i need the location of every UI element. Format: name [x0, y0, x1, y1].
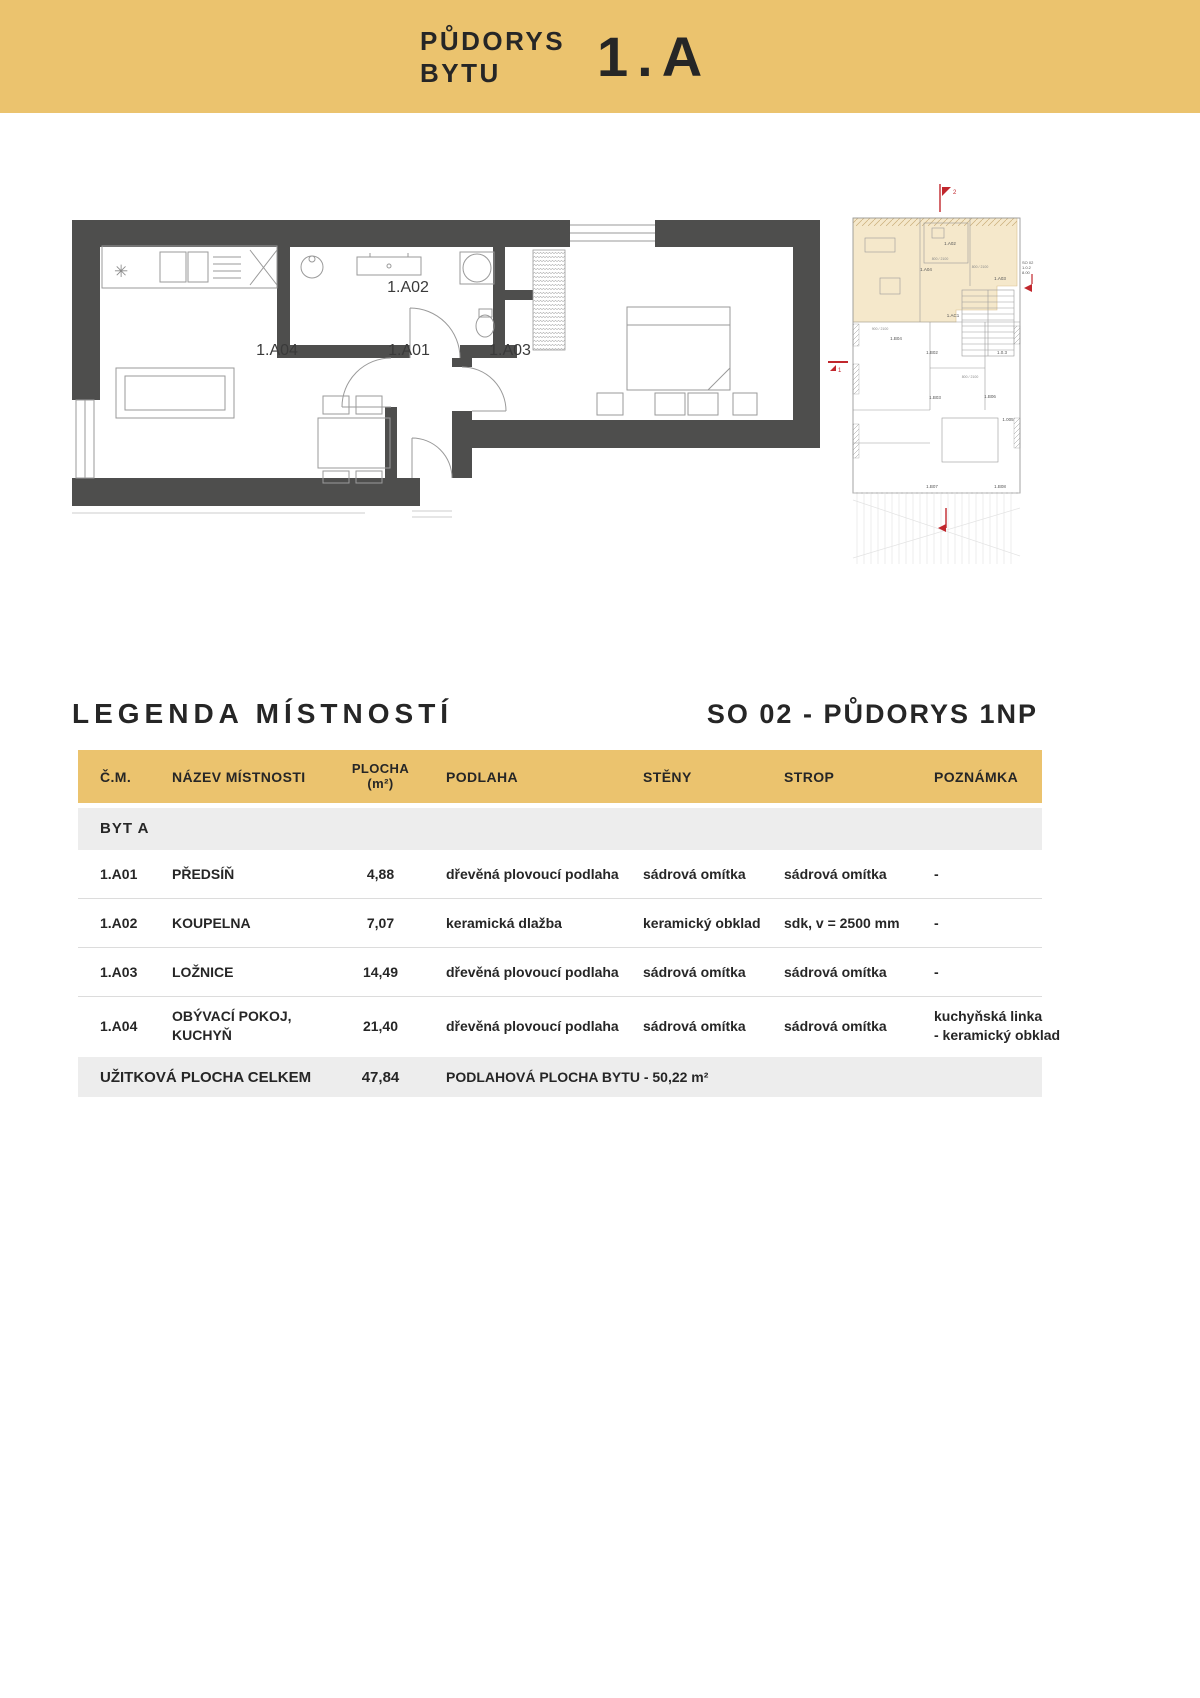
kitchen-counter: ✳ [102, 246, 277, 288]
cell-poznamka: - [921, 866, 1042, 882]
cell-strop: sádrová omítka [771, 964, 921, 980]
cell-podlaha: keramická dlažba [433, 915, 630, 931]
cell-nazev: KOUPELNA [172, 915, 328, 931]
col-header-poznamka: POZNÁMKA [921, 769, 1042, 785]
cell-poznamka: - [921, 915, 1042, 931]
section-marker-top-label: 2 [953, 190, 957, 196]
couch [116, 368, 234, 418]
cell-podlaha: dřevěná plovoucí podlaha [433, 866, 630, 882]
cell-steny: sádrová omítka [630, 964, 771, 980]
dining-table [318, 396, 390, 483]
footer-label: UŽITKOVÁ PLOCHA CELKEM [78, 1069, 328, 1086]
ov-dim: 800 / 2100 [972, 265, 989, 269]
cell-nazev: LOŽNICE [172, 964, 328, 980]
banner-title-line2: BYTU [420, 58, 565, 90]
table-header: Č.M. NÁZEV MÍSTNOSTI PLOCHA (m²) PODLAHA… [78, 750, 1042, 803]
ov-label: 1.A03 [994, 276, 1006, 281]
cell-steny: sádrová omítka [630, 866, 771, 882]
banner-title-line1: PŮDORYS [420, 26, 565, 58]
title-banner: PŮDORYS BYTU 1.A [0, 0, 1200, 113]
table-row: 1.A04 OBÝVACÍ POKOJ, KUCHYŇ 21,40 dřevěn… [78, 996, 1042, 1054]
cell-poznamka: kuchyňská linka - keramický obklad [921, 1007, 1060, 1045]
hob-icon: ✳ [114, 262, 128, 281]
plan-windows [72, 225, 655, 517]
cell-poznamka-line1: kuchyňská linka [934, 1007, 1060, 1026]
section-marker-left: 1 [828, 362, 848, 374]
cell-plocha: 4,88 [328, 866, 433, 882]
section-marker-left-label: 1 [838, 368, 842, 374]
cell-nazev: OBÝVACÍ POKOJ, KUCHYŇ [172, 1007, 328, 1045]
ov-label: 1.B07 [926, 484, 938, 489]
cell-plocha: 7,07 [328, 915, 433, 931]
unit-number: 1.A [597, 24, 711, 89]
section-marker-right [1024, 274, 1032, 292]
ov-dim: 800 / 2100 [932, 257, 949, 261]
cell-nazev-line2: KUCHYŇ [172, 1026, 328, 1045]
cell-strop: sádrová omítka [771, 1018, 921, 1034]
unit-top-hatch [853, 218, 1017, 226]
cell-plocha: 21,40 [328, 1018, 433, 1034]
table-row: 1.A02 KOUPELNA 7,07 keramická dlažba ker… [78, 898, 1042, 947]
cell-steny: sádrová omítka [630, 1018, 771, 1034]
cell-nazev-line1: OBÝVACÍ POKOJ, [172, 1007, 328, 1026]
so-line3: 8.00 [1022, 270, 1031, 275]
unit-highlight [853, 218, 1017, 322]
cell-cm: 1.A02 [78, 915, 172, 931]
so-text-block: SO 02 1.0.2 8.00 [1022, 260, 1034, 275]
ov-label: 1.A02 [944, 241, 956, 246]
room-label-1a03: 1.A03 [489, 342, 531, 359]
section-band: BYT A [78, 808, 1042, 850]
plan-walls [72, 220, 820, 506]
room-labels: 1.A02 1.A04 1.A01 1.A03 [256, 279, 531, 359]
col-header-nazev: NÁZEV MÍSTNOSTI [172, 769, 328, 785]
cell-nazev: PŘEDSÍŇ [172, 866, 328, 882]
room-label-1a01: 1.A01 [388, 342, 430, 359]
ov-dim: 800 / 2100 [962, 375, 979, 379]
ov-label: 1.AC1 [947, 313, 960, 318]
footer-plocha: 47,84 [328, 1069, 433, 1086]
cell-cm: 1.A03 [78, 964, 172, 980]
cell-strop: sdk, v = 2500 mm [771, 915, 921, 931]
ov-label: 1.B02 [926, 350, 938, 355]
legend-title: LEGENDA MÍSTNOSTÍ [72, 698, 453, 730]
door-arcs [342, 308, 506, 478]
apartment-floor-plan: ✳ [65, 195, 825, 525]
ov-label: 1.005 [1002, 417, 1014, 422]
ov-label: 1.B08 [994, 484, 1006, 489]
ov-label: 1.B03 [929, 395, 941, 400]
page: PŮDORYS BYTU 1.A [0, 0, 1200, 1698]
cell-strop: sádrová omítka [771, 866, 921, 882]
ov-label: 1.B06 [984, 394, 996, 399]
col-header-strop: STROP [771, 769, 921, 785]
cell-cm: 1.A01 [78, 866, 172, 882]
table-footer: UŽITKOVÁ PLOCHA CELKEM 47,84 PODLAHOVÁ P… [78, 1057, 1042, 1097]
footer-note: PODLAHOVÁ PLOCHA BYTU - 50,22 m² [433, 1069, 1042, 1085]
terrace-hatch [853, 493, 1020, 564]
ov-label: 1.A04 [920, 267, 932, 272]
col-header-steny: STĚNY [630, 769, 771, 785]
cell-poznamka-line2: - keramický obklad [934, 1026, 1060, 1045]
table-row: 1.A01 PŘEDSÍŇ 4,88 dřevěná plovoucí podl… [78, 850, 1042, 898]
col-header-plocha: PLOCHA (m²) [328, 762, 433, 792]
wardrobe [533, 250, 565, 350]
col-header-podlaha: PODLAHA [433, 769, 630, 785]
table-row: 1.A03 LOŽNICE 14,49 dřevěná plovoucí pod… [78, 947, 1042, 996]
ov-label: 1.0.3 [997, 350, 1008, 355]
room-label-1a04: 1.A04 [256, 342, 298, 359]
cell-cm: 1.A04 [78, 1018, 172, 1034]
ov-label: 1.B04 [890, 336, 902, 341]
ov-dim: 900 / 2100 [872, 327, 889, 331]
section-marker-bottom [938, 508, 946, 532]
col-header-plocha-line1: PLOCHA [328, 762, 433, 777]
bed [597, 307, 757, 415]
room-label-1a02: 1.A02 [387, 279, 429, 296]
cell-plocha: 14,49 [328, 964, 433, 980]
col-header-cm: Č.M. [78, 769, 172, 785]
room-legend-table: Č.M. NÁZEV MÍSTNOSTI PLOCHA (m²) PODLAHA… [78, 750, 1042, 1097]
cell-poznamka: - [921, 964, 1042, 980]
cell-steny: keramický obklad [630, 915, 771, 931]
section-marker-top: 2 [940, 184, 957, 212]
legend-subtitle: SO 02 - PŮDORYS 1NP [707, 699, 1038, 730]
cell-podlaha: dřevěná plovoucí podlaha [433, 964, 630, 980]
cell-podlaha: dřevěná plovoucí podlaha [433, 1018, 630, 1034]
floor-overview-plan: 2 1 SO 02 1.0.2 8.00 1.A02 [820, 178, 1050, 578]
banner-title: PŮDORYS BYTU [420, 26, 565, 89]
col-header-plocha-line2: (m²) [328, 777, 433, 792]
